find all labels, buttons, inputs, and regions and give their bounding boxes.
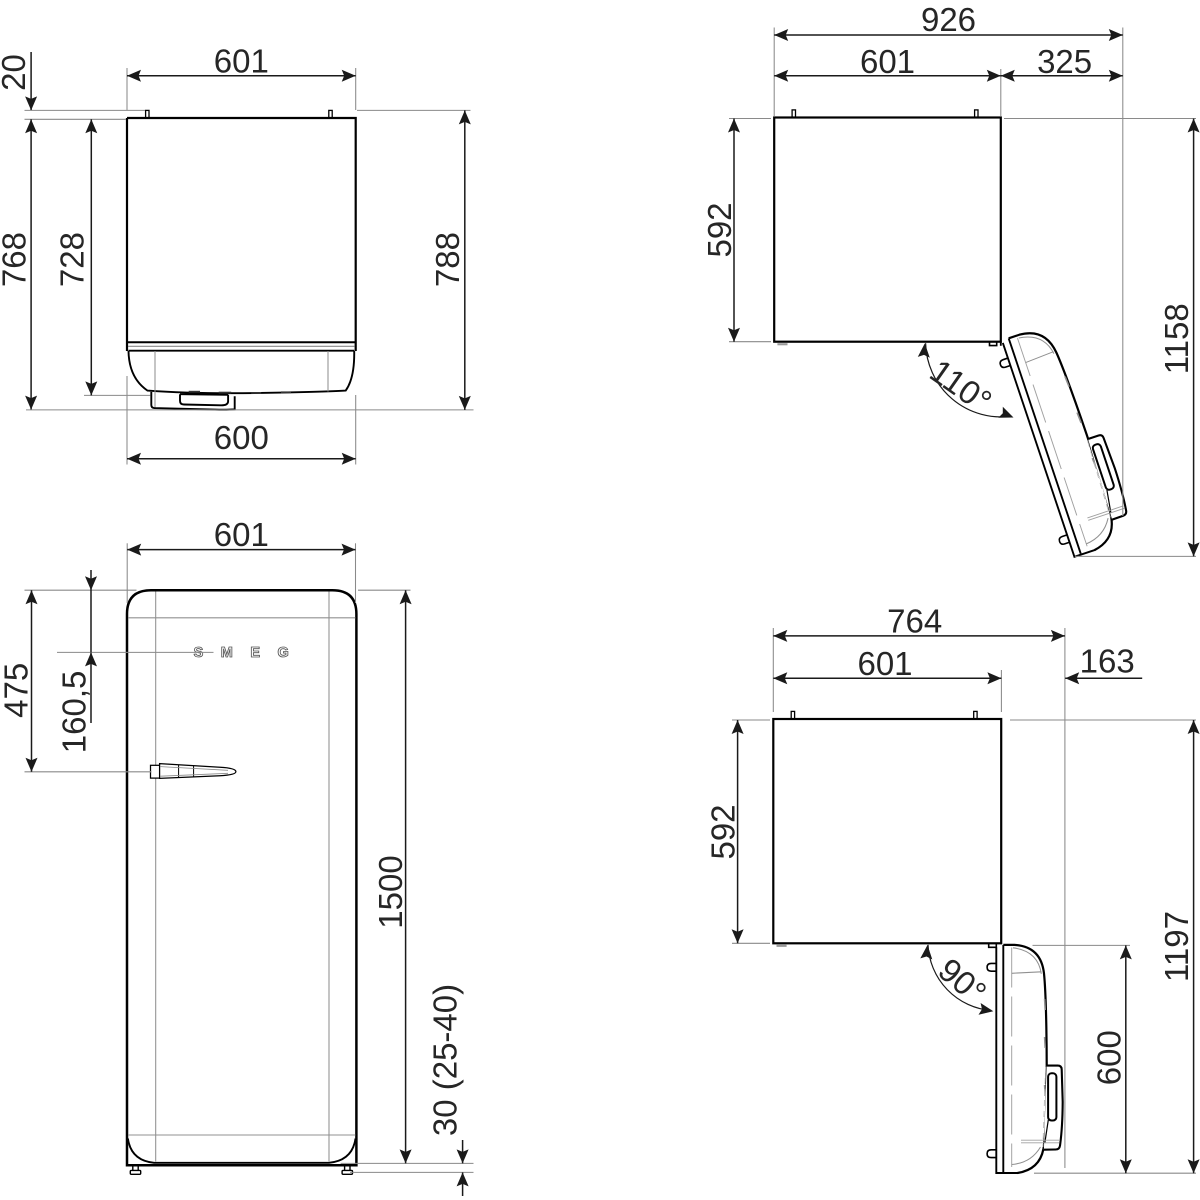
svg-text:926: 926 xyxy=(921,1,976,38)
svg-text:160,5: 160,5 xyxy=(56,671,93,754)
svg-text:728: 728 xyxy=(53,232,90,287)
svg-text:601: 601 xyxy=(857,645,912,682)
svg-text:SMEG: SMEG xyxy=(194,645,307,661)
svg-text:20: 20 xyxy=(0,54,32,91)
svg-text:163: 163 xyxy=(1080,643,1135,680)
svg-text:600: 600 xyxy=(1090,1030,1127,1085)
svg-text:1500: 1500 xyxy=(372,855,409,928)
svg-text:1158: 1158 xyxy=(1158,303,1195,374)
svg-text:788: 788 xyxy=(429,232,466,287)
svg-text:592: 592 xyxy=(705,804,742,859)
svg-text:601: 601 xyxy=(860,43,915,80)
svg-text:768: 768 xyxy=(0,232,33,287)
svg-text:30 (25-40): 30 (25-40) xyxy=(427,984,464,1136)
svg-text:601: 601 xyxy=(214,42,269,79)
svg-text:325: 325 xyxy=(1037,43,1092,80)
svg-text:601: 601 xyxy=(214,516,269,553)
svg-text:592: 592 xyxy=(701,202,738,257)
svg-text:1197: 1197 xyxy=(1158,911,1195,982)
svg-text:475: 475 xyxy=(0,663,34,718)
svg-text:600: 600 xyxy=(214,419,269,456)
svg-text:764: 764 xyxy=(887,602,942,639)
